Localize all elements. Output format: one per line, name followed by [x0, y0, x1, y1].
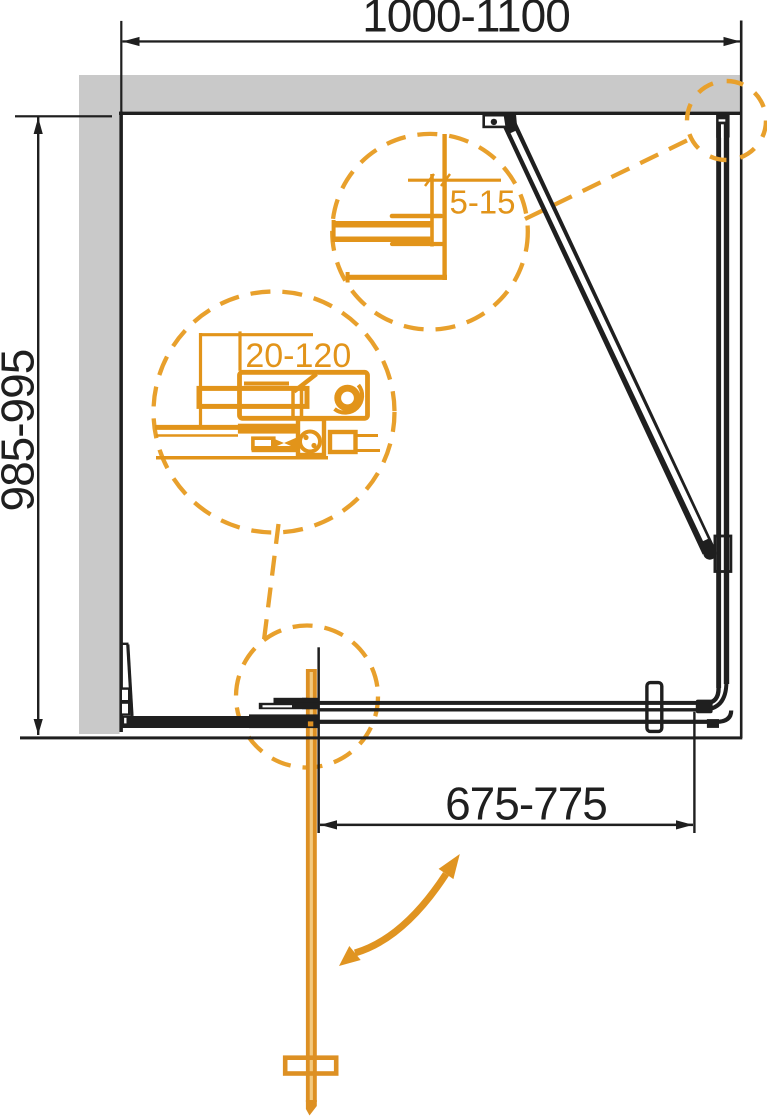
svg-text:20-120: 20-120 — [245, 337, 351, 375]
svg-text:5-15: 5-15 — [449, 184, 515, 221]
svg-text:1000-1100: 1000-1100 — [362, 0, 570, 42]
svg-text:675-775: 675-775 — [445, 778, 607, 830]
svg-text:985-995: 985-995 — [0, 350, 44, 512]
